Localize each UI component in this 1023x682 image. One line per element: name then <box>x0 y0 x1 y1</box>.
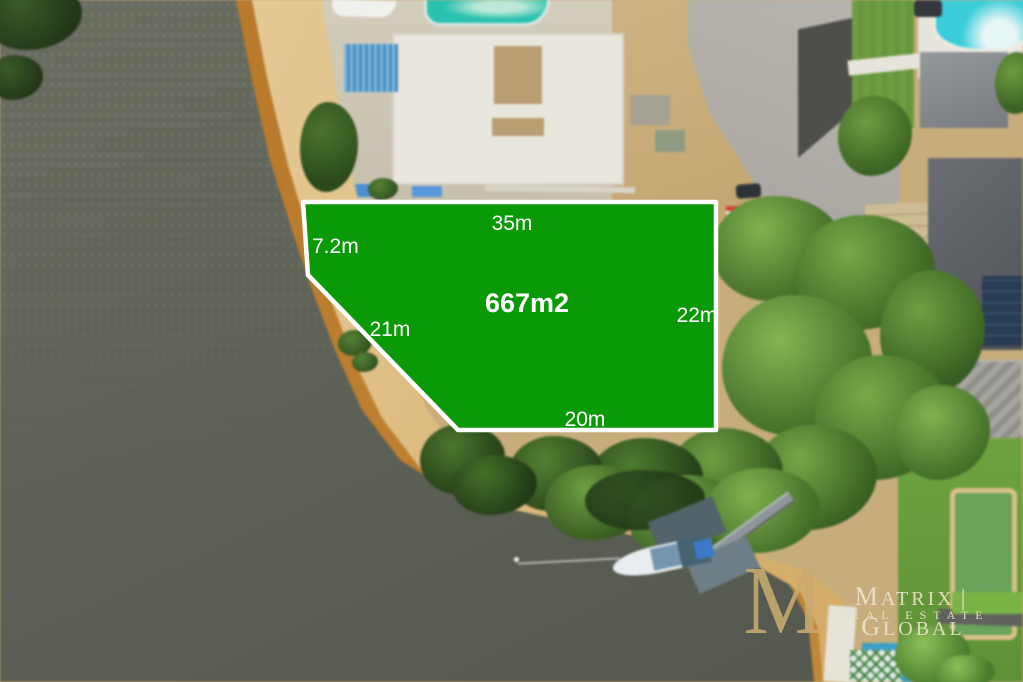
parcel-overlay: 35m 7.2m 667m2 21m 22m 20m <box>0 0 1023 682</box>
measurement-bottom: 20m <box>565 408 606 431</box>
parcel-area-label: 667m2 <box>485 288 569 318</box>
measurement-right: 22m <box>677 304 718 327</box>
agency-tagline: REAL ESTATE <box>828 608 998 623</box>
aerial-photo-listing: 35m 7.2m 667m2 21m 22m 20m M MATRIX|GLOB… <box>0 0 1023 682</box>
measurement-top: 35m <box>492 212 533 235</box>
measurement-left-diagonal: 21m <box>370 318 411 341</box>
measurement-left-upper: 7.2m <box>312 235 359 258</box>
